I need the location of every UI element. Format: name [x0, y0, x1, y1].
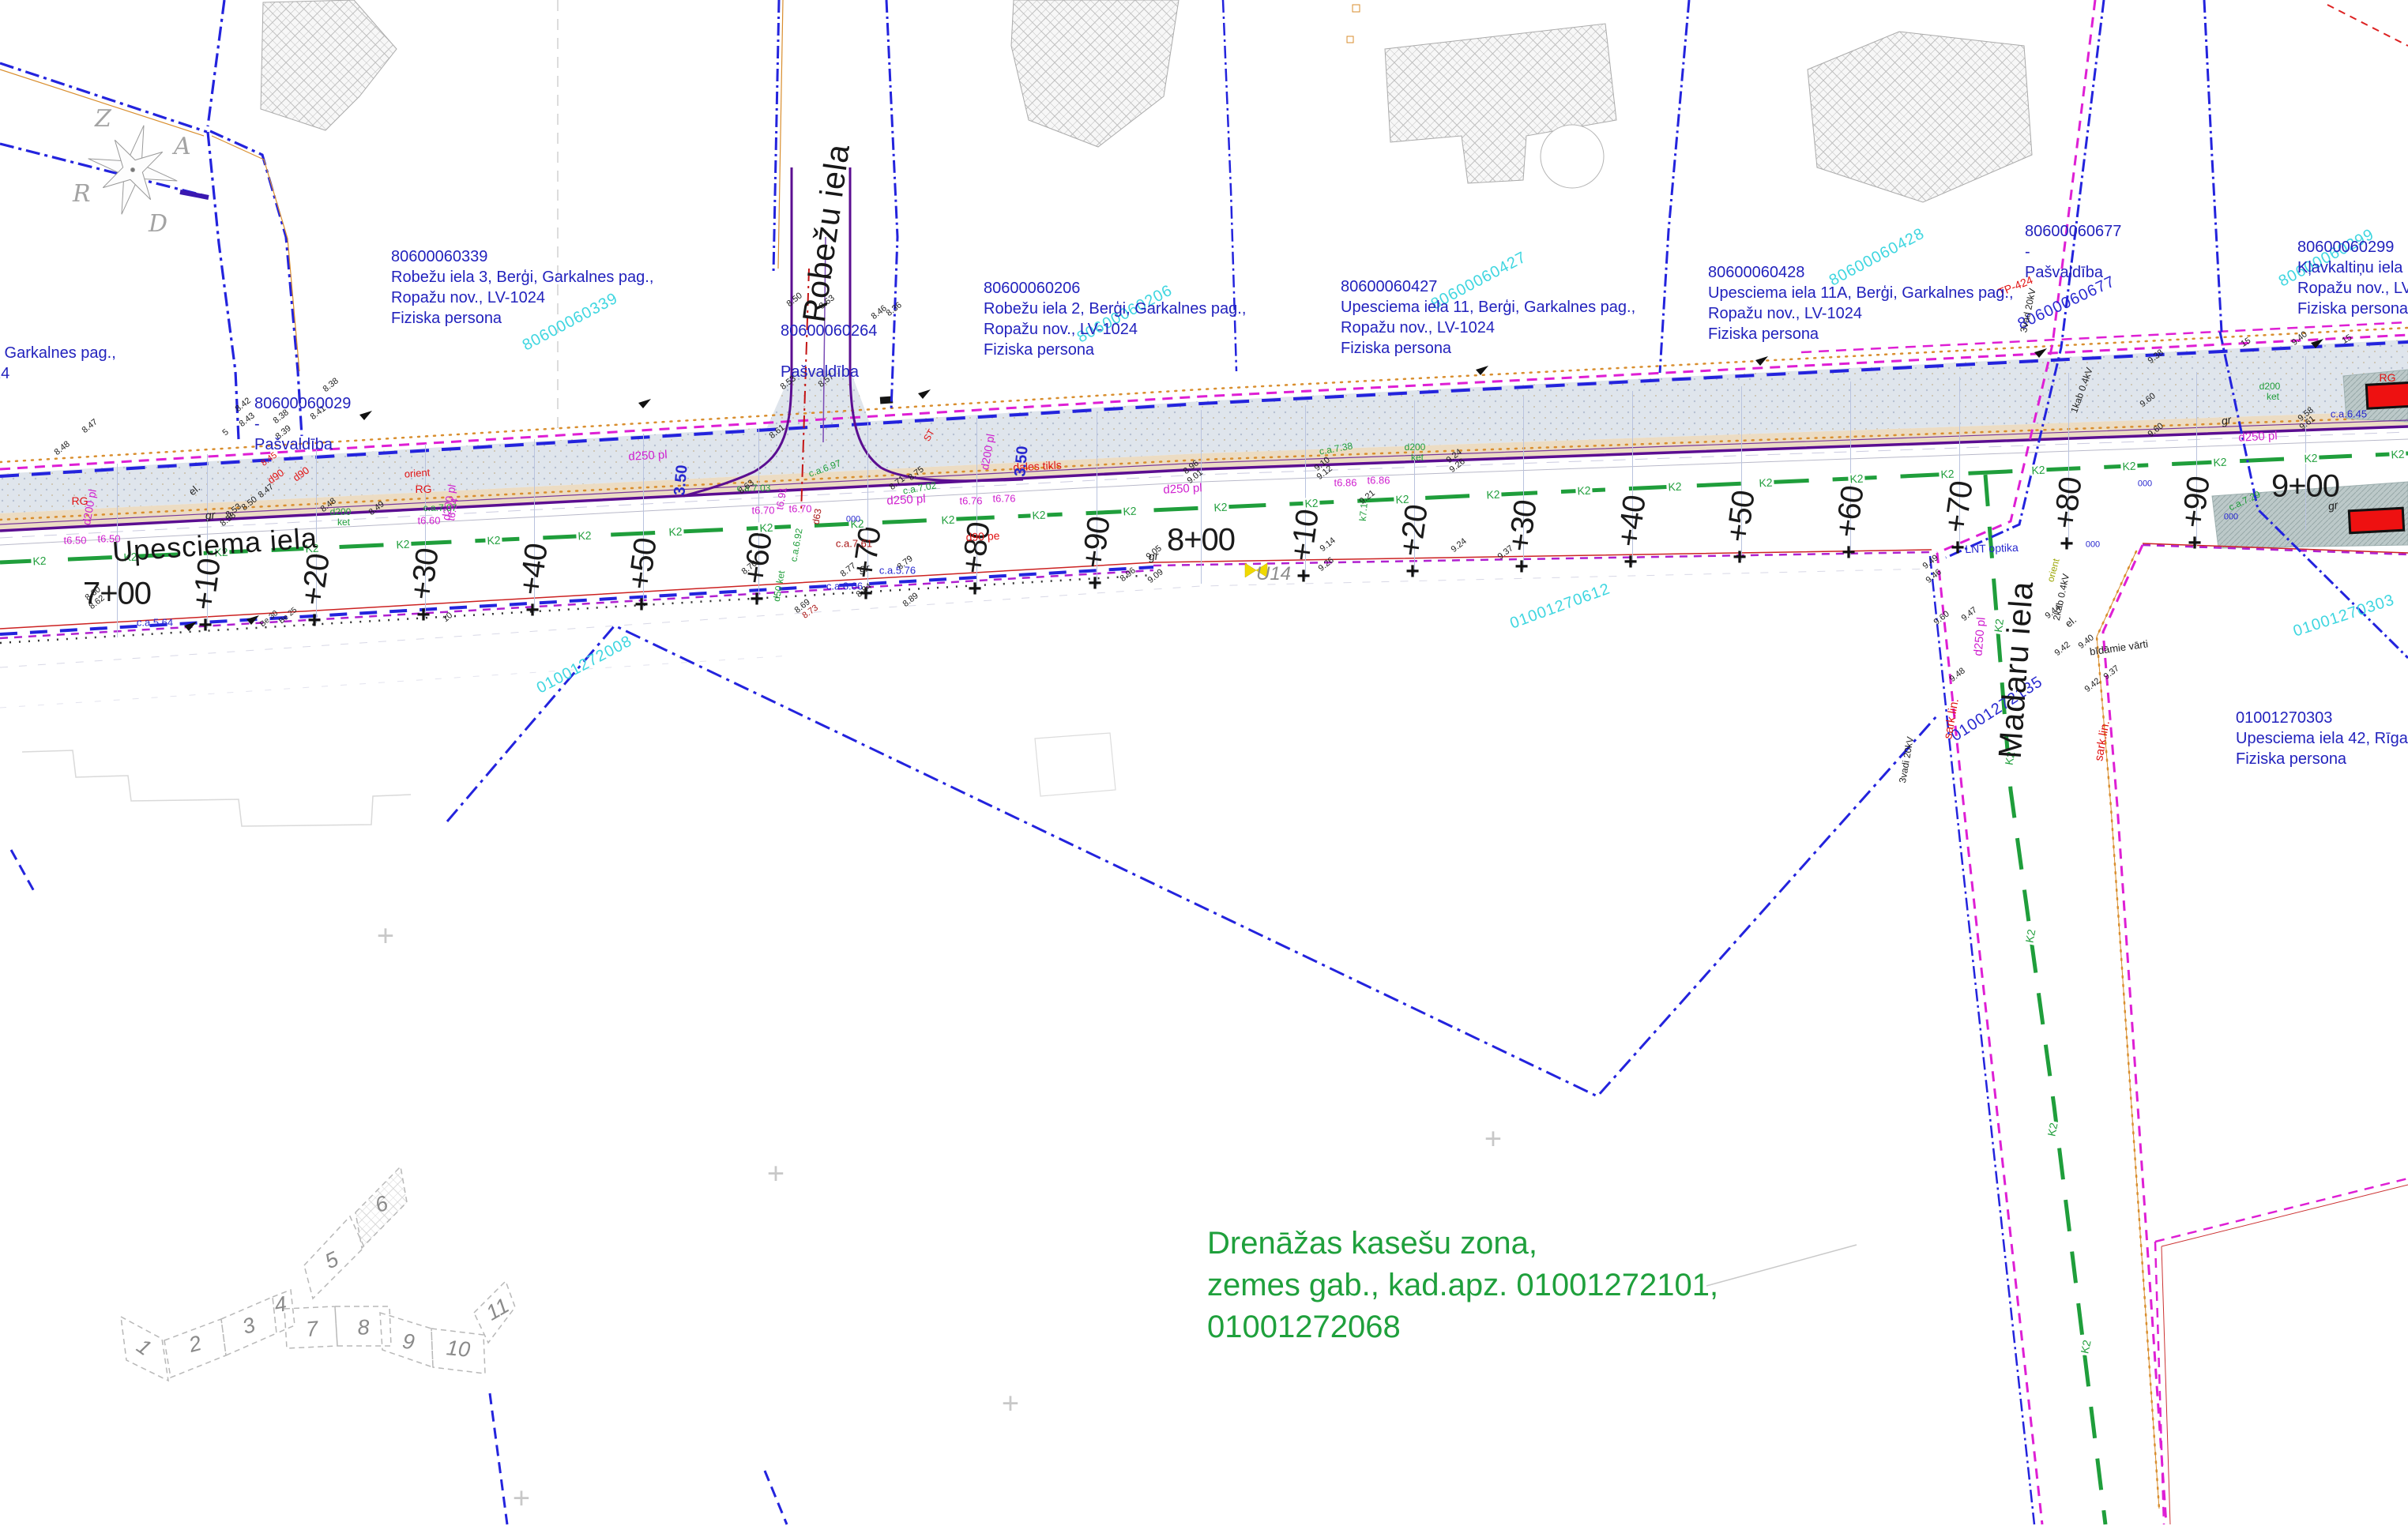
station-plus-mark: +: [634, 592, 649, 618]
map-annotation: c.a.7.02: [902, 480, 937, 495]
parcel-info-block: 80600060677-Pašvaldība: [2025, 221, 2121, 283]
map-annotation: U14: [1256, 565, 1291, 584]
station-chainage-label: +60: [737, 531, 780, 586]
map-annotation: 9.48: [1948, 667, 1967, 684]
map-annotation: 8.47: [81, 418, 100, 435]
map-annotation: Be 30: [259, 610, 280, 629]
k2-sewer-label: K2: [2302, 452, 2320, 464]
map-annotation: 9.60: [2147, 422, 2165, 439]
parcel-info-line: Pašvaldība: [781, 362, 877, 382]
station-plus-mark: +: [2188, 530, 2202, 557]
map-annotation: gr: [2221, 414, 2233, 427]
map-annotation: t6.70: [789, 504, 812, 514]
k2-sewer-label: K2: [1939, 468, 1956, 479]
station-chainage-label: 8+00: [1167, 523, 1235, 558]
map-annotation: 10: [442, 611, 454, 624]
parcel-info-line: Kļavkaltiņu iela 1: [2297, 257, 2408, 278]
grid-cross-mark: +: [1484, 1123, 1502, 1157]
map-annotation: 8.50: [240, 495, 259, 513]
parcel-info-line: Ropažu nov., LV-1024: [1708, 303, 2014, 324]
station-plus-mark: +: [1842, 539, 1856, 566]
parcel-info-line: Upesciema iela 11, Berģi, Garkalnes pag.…: [1341, 297, 1635, 318]
k2-sewer-label: K2: [1666, 480, 1684, 492]
street-name-label: Upesciema iela: [111, 521, 318, 569]
map-annotation: d250 pl: [1163, 482, 1202, 496]
parcel-info-block: 80600060299Kļavkaltiņu iela 1Ropažu nov.…: [2297, 237, 2408, 319]
map-annotation: 9.37: [1496, 544, 1515, 562]
map-annotation: d250 pl: [628, 449, 668, 463]
k2-sewer-label: K2: [939, 513, 957, 525]
map-annotation: RG: [72, 495, 88, 506]
parcel-info-block: 80600060264 Pašvaldība: [781, 321, 877, 382]
map-annotation: 8.47: [257, 483, 276, 500]
station-chainage-label: +70: [1938, 479, 1981, 535]
station-chainage-label: +40: [1611, 494, 1654, 549]
map-annotation: t6.86: [1334, 478, 1357, 488]
drainage-note-line: Drenāžas kasešu zona,: [1207, 1223, 1718, 1265]
k2-sewer-label: K2: [2211, 456, 2229, 468]
station-chainage-label: +90: [1075, 515, 1118, 570]
map-annotation: 9.42: [2083, 677, 2102, 694]
map-annotation: 8.38: [322, 377, 341, 394]
survey-map-canvas: Z A R D Drenāžas kasešu zona, zemes gab.…: [0, 0, 2408, 1526]
map-annotation: 3vadi 20kV: [1898, 736, 1915, 784]
k2-sewer-label: K2: [394, 538, 412, 550]
map-annotation: 8.46: [870, 304, 889, 321]
map-annotation: d200 pl: [979, 433, 996, 471]
station-plus-mark: +: [1088, 570, 1102, 597]
map-annotation: ket: [1411, 453, 1424, 462]
parcel-info-line: Ropažu nov., LV: [2297, 278, 2408, 299]
parcel-info-line: 80600060299: [2297, 237, 2408, 257]
parcel-info-block: 80600060427Upesciema iela 11, Berģi, Gar…: [1341, 276, 1635, 359]
map-annotation: 9.24: [1450, 537, 1469, 554]
k2-sewer-label: K2: [31, 554, 48, 566]
station-plus-mark: +: [2060, 531, 2074, 558]
k2-sewer-label: K2: [485, 534, 502, 546]
map-annotation: c.a.6.92: [788, 528, 803, 562]
parcel-info-line: Upesciema iela 42, Rīga, LV: [2236, 728, 2408, 749]
k2-sewer-label: K2: [2120, 460, 2138, 472]
map-annotation: t6.70: [752, 506, 775, 516]
map-annotation: t6.76: [960, 496, 983, 506]
map-labels-layer: Z A R D Drenāžas kasešu zona, zemes gab.…: [0, 0, 2408, 1526]
parcel-info-line: Pašvaldība: [2025, 262, 2121, 283]
map-annotation: d200: [2259, 381, 2281, 391]
map-annotation: 3.50: [672, 464, 690, 497]
plot-number-label: 8: [357, 1315, 371, 1340]
map-annotation: c.a.5.64: [137, 618, 173, 628]
cadastral-number-label: 01001270303: [2291, 591, 2397, 641]
plot-number-label: 3: [239, 1313, 258, 1340]
station-plus-mark: +: [750, 586, 764, 613]
k2-sewer-label: K2: [1303, 497, 1320, 509]
map-annotation: c.a.7.07: [423, 503, 457, 513]
map-annotation: LNT optika: [1965, 542, 2019, 554]
map-annotation: gr: [2327, 499, 2339, 512]
map-annotation: 9.46: [1925, 568, 1943, 585]
k2-sewer-label: K2: [1030, 509, 1048, 521]
k2-sewer-label: K2: [2030, 464, 2047, 475]
parcel-info-line: 80600060264: [781, 321, 877, 341]
map-annotation: 9.60: [2139, 392, 2158, 409]
parcel-info-block: 80600060428Upesciema iela 11A, Berģi, Ga…: [1708, 262, 2014, 344]
station-plus-mark: +: [198, 612, 213, 639]
parcel-info-line: Ropažu nov., LV-1024: [984, 319, 1246, 340]
map-annotation: t6.86: [1368, 475, 1390, 486]
map-annotation: orient: [404, 467, 430, 479]
map-annotation: 8.89: [901, 592, 920, 609]
k2-sewer-label: K2: [1212, 501, 1229, 513]
station-chainage-label: +90: [2175, 475, 2218, 530]
parcel-info-line: 80600060428: [1708, 262, 2014, 283]
compass-letter-south: D: [149, 210, 167, 238]
cadastral-number-label: 01001272008: [534, 633, 636, 698]
map-annotation: 9.60: [1932, 610, 1951, 627]
parcel-info-line: 80600060029: [254, 393, 351, 414]
parcel-info-block: 80600060029-Pašvaldība: [254, 393, 351, 455]
map-annotation: RG: [2380, 372, 2396, 383]
k2-sewer-label: K2: [2389, 448, 2406, 460]
map-annotation: 000: [2224, 513, 2238, 522]
map-annotation: c.a.7.29: [2227, 490, 2262, 513]
k2-sewer-label: K2: [2079, 1337, 2093, 1356]
station-chainage-label: +10: [1284, 508, 1326, 563]
map-annotation: el.: [187, 483, 202, 498]
map-annotation: 9.38: [2147, 348, 2165, 366]
map-annotation: gr: [205, 509, 216, 521]
parcel-info-line: 80600060427: [1341, 276, 1635, 297]
parcel-info-block: 01001270303Upesciema iela 42, Rīga, LVFi…: [2236, 708, 2408, 769]
parcel-info-block: 80600060339Robežu iela 3, Berģi, Garkaln…: [391, 246, 653, 329]
drainage-note-line: 01001272068: [1207, 1306, 1718, 1348]
map-annotation: 15: [2341, 333, 2353, 346]
parcel-info-line: Robežu iela 3, Berģi, Garkalnes pag.,: [391, 267, 653, 288]
cadastral-number-label: 01001270612: [1507, 580, 1612, 633]
parcel-info-block: 80600060206Robežu iela 2, Berģi, Garkaln…: [984, 278, 1246, 360]
parcel-info-line: Upesciema iela 11A, Berģi, Garkalnes pag…: [1708, 283, 2014, 303]
map-annotation: 15: [2240, 336, 2252, 349]
map-annotation: ST: [922, 427, 936, 442]
parcel-info-line: -: [2025, 242, 2121, 262]
map-annotation: d200: [330, 507, 352, 517]
k2-sewer-label: K2: [1484, 488, 1502, 500]
k2-sewer-label: K2: [1394, 493, 1411, 505]
parcel-info-line: i, Garkalnes pag.,: [0, 343, 116, 363]
parcel-info-line: Fiziska persona: [1708, 324, 2014, 344]
station-plus-mark: +: [525, 597, 540, 624]
k2-sewer-label: K2: [1757, 476, 1774, 488]
parcel-info-line: 80600060339: [391, 246, 653, 267]
map-annotation: RG: [416, 483, 432, 494]
k2-sewer-label: K2: [667, 525, 684, 537]
map-annotation: 8.61: [768, 423, 787, 441]
station-plus-mark: +: [968, 576, 982, 603]
map-annotation: t6.50: [64, 536, 87, 546]
parcel-info-line: 80600060677: [2025, 221, 2121, 242]
parcel-info-line: Pašvaldība: [254, 434, 351, 455]
station-plus-mark: +: [1296, 563, 1311, 590]
plot-number-label: 11: [482, 1294, 514, 1326]
station-chainage-label: +10: [186, 557, 228, 612]
map-annotation: 000: [846, 516, 860, 524]
compass-letter-north: Z: [95, 105, 111, 133]
map-annotation: t6.76: [993, 494, 1016, 504]
parcel-info-line: Fiziska persona: [391, 308, 653, 329]
drainage-note-line: zemes gab., kad.apz. 01001272101,: [1207, 1265, 1718, 1306]
map-annotation: c.a.7.61: [836, 539, 872, 549]
parcel-info-line: 80600060206: [984, 278, 1246, 299]
plot-number-label: 6: [372, 1191, 392, 1218]
compass-letter-east: A: [174, 133, 191, 160]
map-annotation: 000: [2138, 480, 2152, 489]
station-plus-mark: +: [1951, 535, 1965, 562]
parcel-info-line: Fiziska persona: [2236, 749, 2408, 769]
parcel-info-line: Robežu iela 2, Berģi, Garkalnes pag.,: [984, 299, 1246, 319]
plot-number-label: 2: [186, 1331, 205, 1358]
station-chainage-label: +50: [1720, 489, 1763, 544]
parcel-info-line: 01001270303: [2236, 708, 2408, 728]
map-annotation: ket: [337, 517, 350, 527]
parcel-info-line: Fiziska persona: [2297, 299, 2408, 319]
map-annotation: 9.40: [2290, 330, 2309, 348]
map-annotation: 8.96: [1119, 566, 1138, 584]
plot-number-label: 7: [305, 1317, 319, 1342]
station-chainage-label: +20: [1393, 503, 1435, 558]
map-annotation: el.: [2064, 615, 2079, 630]
map-annotation: 1kab 0.4kV: [2069, 366, 2094, 415]
station-plus-mark: +: [1733, 544, 1747, 571]
k2-sewer-label: K2: [1848, 472, 1865, 484]
map-annotation: gr: [859, 562, 870, 573]
parcel-info-block: i, Garkalnes pag.,24: [0, 343, 116, 384]
grid-cross-mark: +: [377, 920, 394, 954]
map-annotation: sark.lin.: [2093, 720, 2112, 762]
parcel-info-line: -: [254, 414, 351, 434]
map-annotation: 9.37: [2102, 664, 2121, 682]
parcel-info-line: 24: [0, 363, 116, 384]
map-annotation: c.a.6.97: [807, 458, 842, 479]
street-name-label: Robežu iela: [796, 141, 857, 325]
map-annotation: 3.50: [1012, 445, 1030, 478]
map-annotation: bīdāmie vārti: [2089, 638, 2149, 656]
parcel-info-line: Fiziska persona: [984, 340, 1246, 360]
station-chainage-label: +30: [404, 547, 446, 602]
map-annotation: c.a.7.38: [1319, 441, 1353, 456]
map-annotation: t6.91: [774, 487, 788, 511]
map-annotation: 8.49: [367, 500, 386, 517]
plot-number-label: 9: [401, 1329, 416, 1355]
plot-number-label: 4: [273, 1291, 288, 1317]
station-plus-mark: +: [307, 607, 322, 634]
map-annotation: 9.26: [1317, 556, 1336, 573]
station-chainage-label: +50: [622, 536, 664, 592]
plot-number-label: 10: [446, 1336, 472, 1362]
map-annotation: ket: [2267, 392, 2279, 401]
map-annotation: d63: [811, 508, 822, 525]
parcel-info-line: [781, 341, 877, 362]
plot-number-label: 1: [132, 1334, 156, 1361]
map-annotation: t6.60: [418, 516, 441, 526]
grid-cross-mark: +: [513, 1483, 530, 1517]
station-chainage-label: +20: [295, 552, 337, 607]
grid-cross-mark: +: [1002, 1388, 1019, 1422]
station-plus-mark: +: [1405, 558, 1420, 585]
plot-number-label: 5: [322, 1247, 343, 1274]
k2-sewer-label: K2: [1575, 484, 1593, 496]
station-chainage-label: +60: [1829, 484, 1872, 539]
station-chainage-label: +40: [513, 542, 555, 597]
station-chainage-label: +80: [955, 521, 998, 576]
station-plus-mark: +: [416, 602, 431, 629]
station-plus-mark: +: [1624, 549, 1638, 576]
k2-sewer-label: K2: [2045, 1120, 2060, 1139]
parcel-info-line: Fiziska persona: [1341, 338, 1635, 359]
station-chainage-label: +80: [2047, 475, 2090, 531]
street-name-label: Madaru iela: [1992, 580, 2041, 760]
k2-sewer-label: K2: [576, 529, 593, 541]
k2-sewer-label: K2: [2023, 926, 2037, 945]
map-annotation: d200: [1405, 442, 1426, 452]
k2-sewer-label: K2: [758, 521, 775, 533]
compass-letter-west: R: [73, 180, 91, 208]
k2-sewer-label: K2: [1121, 505, 1138, 517]
drainage-note: Drenāžas kasešu zona, zemes gab., kad.ap…: [1207, 1223, 1718, 1348]
map-annotation: 9.09: [1146, 568, 1165, 585]
station-plus-mark: +: [1514, 554, 1529, 581]
map-annotation: d250 pl: [2238, 430, 2278, 444]
parcel-info-line: Ropažu nov., LV-1024: [391, 288, 653, 308]
grid-cross-mark: +: [767, 1158, 784, 1192]
map-annotation: 8.75: [907, 465, 926, 483]
map-annotation: 5: [221, 428, 231, 438]
map-annotation: 9.42: [2053, 641, 2072, 658]
map-annotation: d90 pe: [965, 530, 1000, 543]
map-annotation: c.a.6.45: [2331, 409, 2367, 419]
map-annotation: d250 pl: [1972, 617, 1987, 656]
map-annotation: 8.48: [53, 440, 72, 457]
parcel-info-line: Ropažu nov., LV-1024: [1341, 318, 1635, 338]
map-annotation: 8.58: [219, 511, 238, 528]
map-annotation: 000: [2086, 541, 2100, 550]
map-annotation: Be 25: [278, 607, 299, 626]
map-annotation: d90: [291, 464, 310, 483]
